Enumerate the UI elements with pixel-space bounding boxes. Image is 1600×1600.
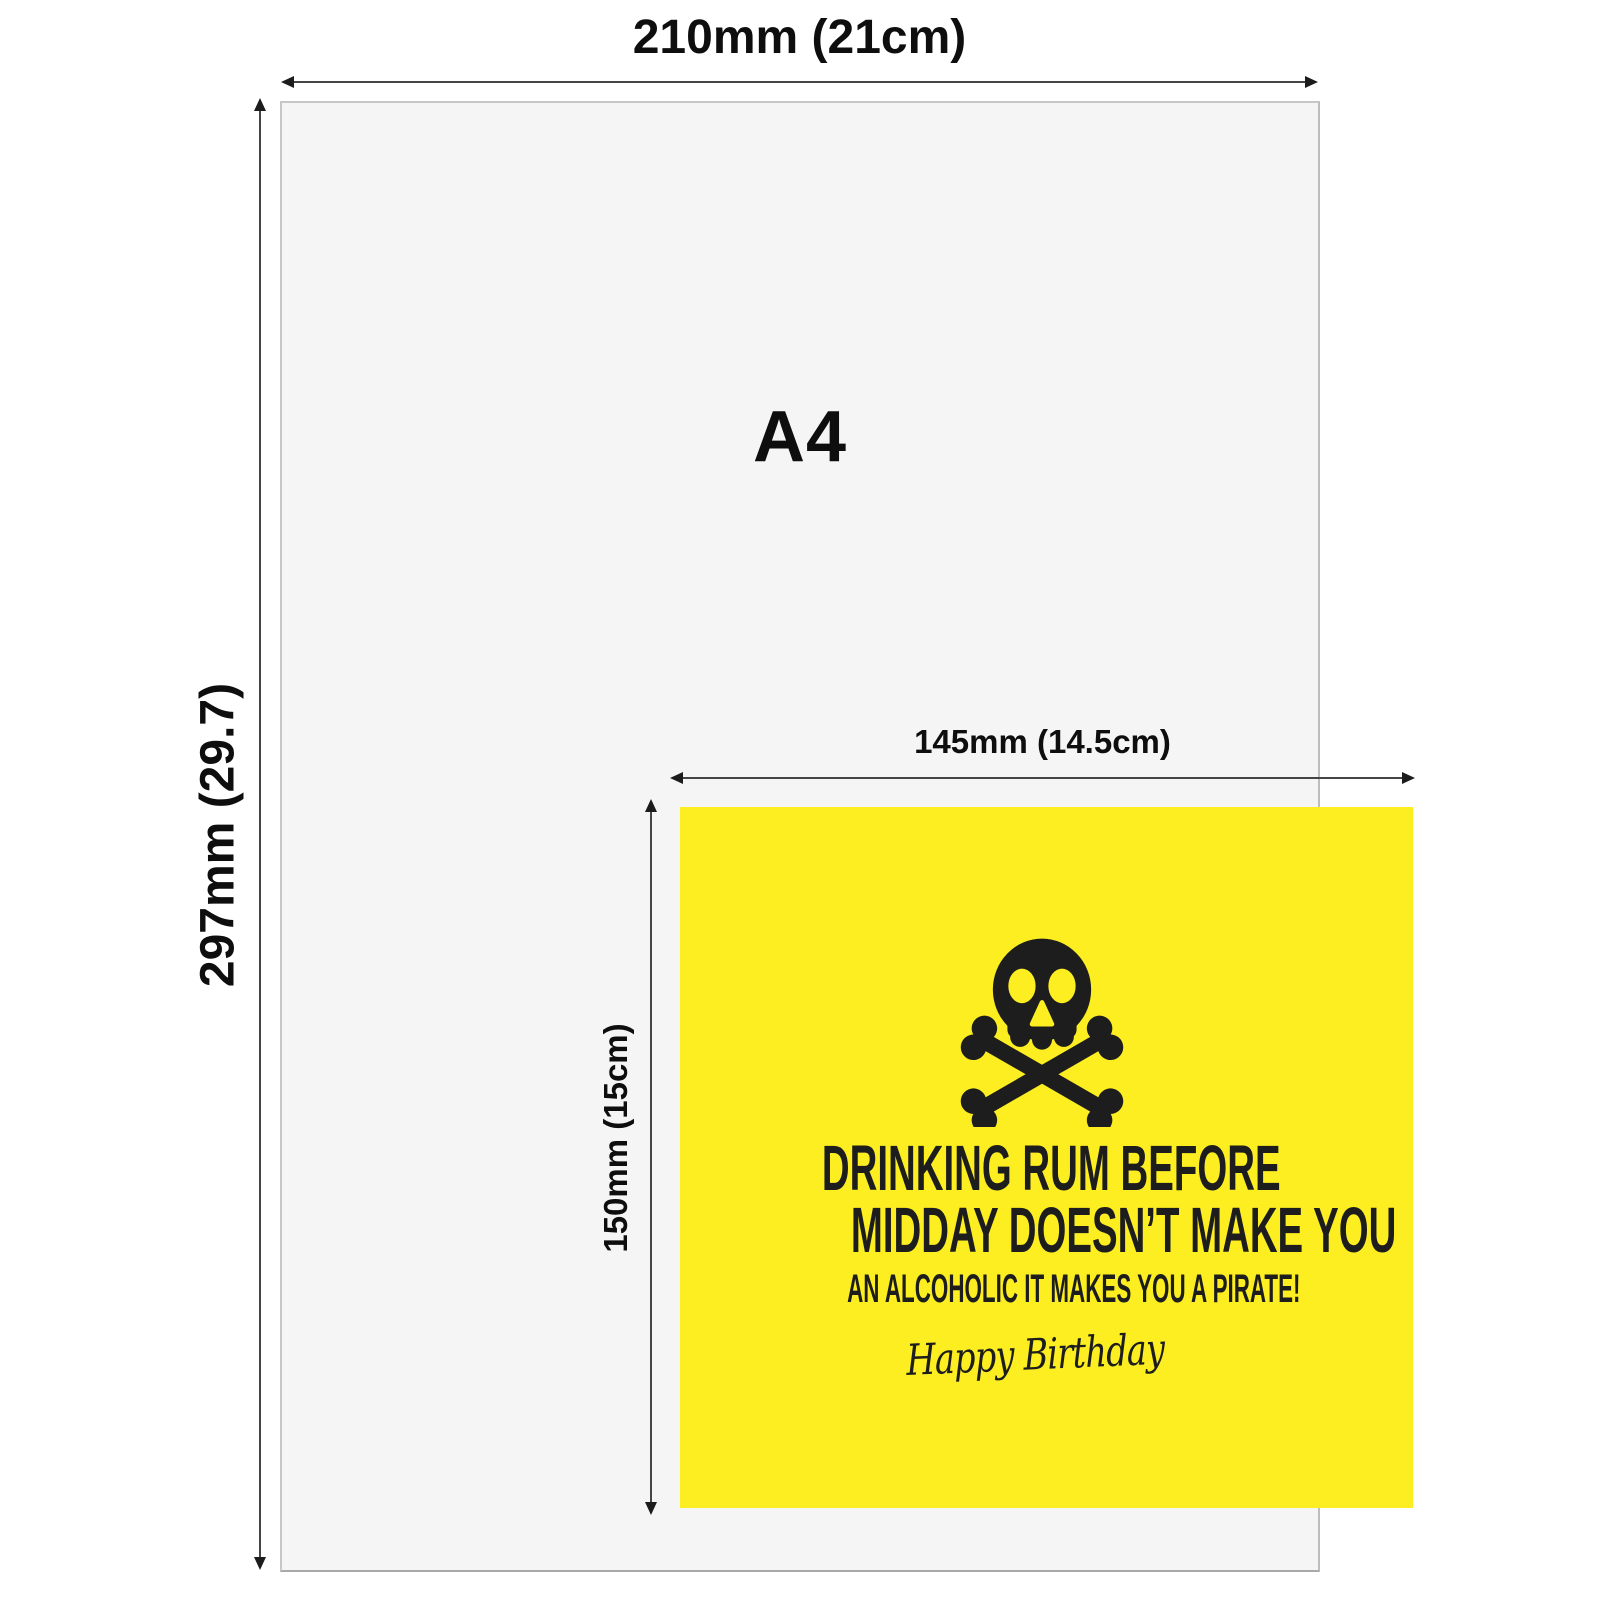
card-width-dimension-label: 145mm (14.5cm) xyxy=(672,722,1413,762)
skull-and-crossbones-icon xyxy=(951,925,1133,1127)
size-guide-canvas: A4 210mm (21cm) 297mm (29.7) 145mm (14.5… xyxy=(0,0,1600,1600)
card-script-greeting: Happy Birthday xyxy=(669,1325,1402,1385)
card-height-dimension-label: 150mm (15cm) xyxy=(597,1023,635,1252)
card-line-2: MIDDAY DOESN’T MAKE YOU xyxy=(669,1199,1402,1261)
greeting-card: DRINKING RUM BEFORE MIDDAY DOESN’T MAKE … xyxy=(680,807,1413,1508)
card-height-dimension-arrow xyxy=(650,801,652,1513)
arrowhead-right-icon xyxy=(1402,772,1415,784)
arrowhead-down-icon xyxy=(645,1502,657,1515)
card-width-dimension-arrow xyxy=(672,777,1413,779)
a4-size-label: A4 xyxy=(282,399,1318,475)
a4-width-dimension-arrow xyxy=(283,81,1316,83)
arrowhead-right-icon xyxy=(1305,76,1318,88)
arrowhead-up-icon xyxy=(645,799,657,812)
card-line-1: DRINKING RUM BEFORE xyxy=(669,1137,1402,1199)
arrowhead-left-icon xyxy=(670,772,683,784)
card-message: DRINKING RUM BEFORE MIDDAY DOESN’T MAKE … xyxy=(669,1137,1402,1385)
card-line-3: AN ALCOHOLIC IT MAKES YOU A PIRATE! xyxy=(669,1261,1402,1317)
a4-width-dimension-label: 210mm (21cm) xyxy=(283,10,1316,66)
a4-height-dimension-arrow xyxy=(259,100,261,1568)
a4-height-dimension-label: 297mm (29.7) xyxy=(191,683,246,987)
arrowhead-left-icon xyxy=(281,76,294,88)
arrowhead-up-icon xyxy=(254,98,266,111)
arrowhead-down-icon xyxy=(254,1557,266,1570)
